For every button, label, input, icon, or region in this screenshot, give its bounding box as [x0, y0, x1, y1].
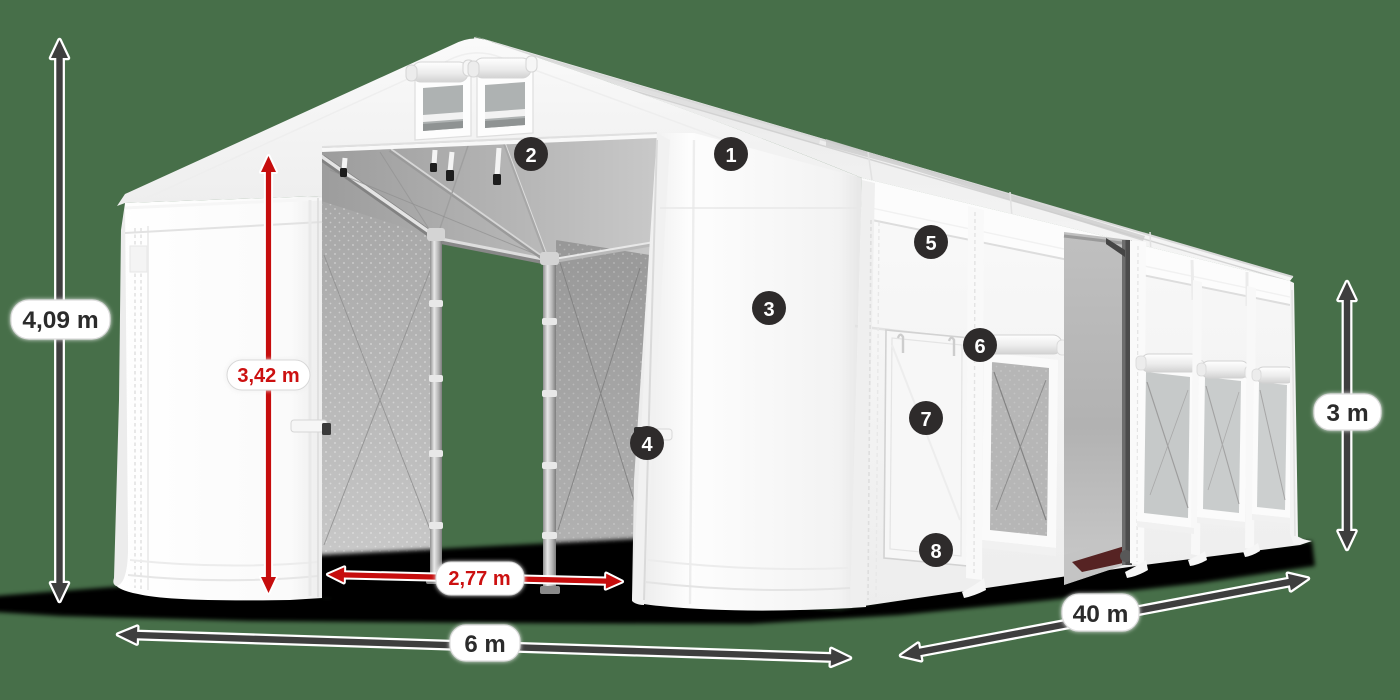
svg-text:1: 1: [725, 145, 736, 167]
svg-text:4: 4: [641, 434, 653, 456]
svg-text:6 m: 6 m: [464, 631, 505, 658]
svg-text:3 m: 3 m: [1326, 400, 1368, 427]
svg-text:2: 2: [525, 145, 536, 167]
svg-text:8: 8: [930, 541, 941, 563]
svg-text:3,42 m: 3,42 m: [237, 365, 299, 387]
svg-text:4,09 m: 4,09 m: [22, 307, 98, 334]
svg-text:3: 3: [763, 299, 774, 321]
svg-text:6: 6: [974, 336, 985, 358]
svg-text:40 m: 40 m: [1073, 601, 1129, 628]
svg-text:2,77 m: 2,77 m: [448, 568, 510, 590]
svg-text:5: 5: [925, 233, 936, 255]
svg-text:7: 7: [920, 409, 931, 431]
